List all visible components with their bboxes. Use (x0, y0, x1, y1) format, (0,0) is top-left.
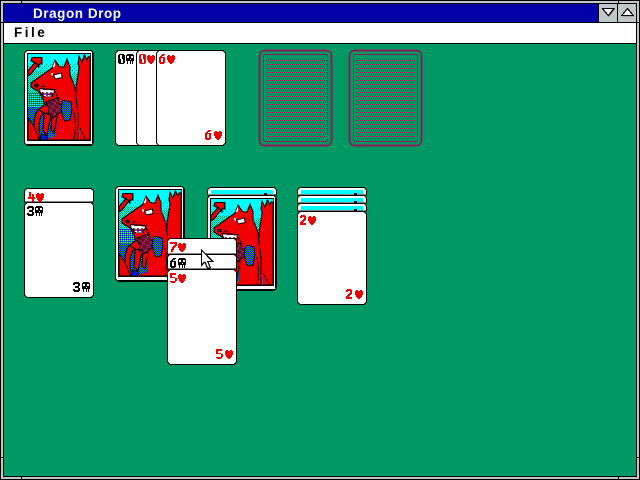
svg-text:File: File (14, 25, 47, 40)
svg-text:Dragon Drop: Dragon Drop (33, 6, 122, 21)
